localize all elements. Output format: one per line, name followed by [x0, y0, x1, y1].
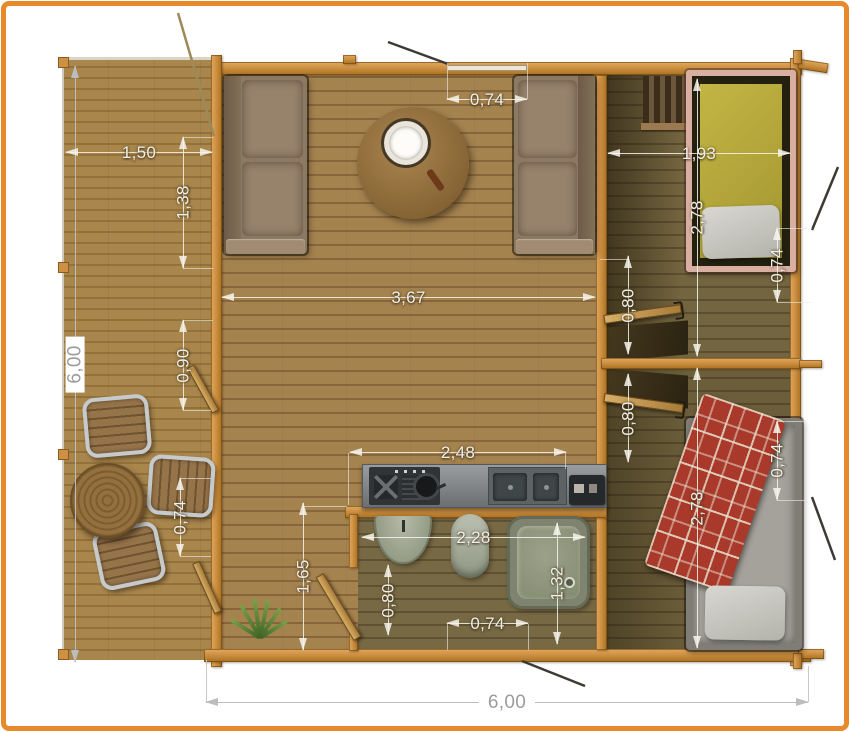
dim-porch-width: 1,50 [66, 146, 212, 158]
sofa-cushion [242, 80, 303, 158]
extension-line [348, 453, 349, 505]
dim-total-width: 6,00 [206, 696, 808, 708]
wall-stub [793, 50, 802, 64]
front-window [447, 65, 527, 71]
stove [369, 467, 440, 505]
sofa-left [224, 76, 307, 254]
floor-plan: 6,00 6,00 1,50 1,38 0,90 0,74 0,74 3,67 … [0, 0, 850, 732]
extension-line [777, 302, 812, 303]
wall-left [211, 55, 222, 667]
sink-basin [493, 473, 527, 501]
sofa-armrest [226, 239, 305, 254]
dim-shower-width: 1,32 [551, 523, 563, 644]
stove-burner [374, 475, 398, 499]
extension-line [777, 500, 807, 501]
porch-post [58, 449, 69, 460]
extension-line [303, 506, 347, 507]
dim-porch-opening-upper: 1,38 [177, 137, 189, 268]
wall-stub [793, 653, 802, 669]
porch-post [58, 649, 69, 660]
dim-hall-door-lower: 0,80 [622, 374, 634, 462]
dim-porch-window: 0,74 [174, 478, 186, 556]
wall-back [204, 649, 811, 662]
plant [232, 594, 288, 650]
porch-post [58, 262, 69, 273]
wall-stub [799, 360, 822, 368]
dim-bedroom2-window: 0,74 [771, 421, 783, 500]
sofa-backrest [224, 76, 241, 254]
sofa-backrest [578, 76, 595, 254]
kitchen-sink [488, 467, 567, 505]
dim-front-window: 0,74 [447, 93, 527, 105]
wall-stub [797, 59, 828, 74]
coffee-maker [569, 475, 605, 505]
door-swing-line [812, 497, 835, 560]
wall-stub [343, 55, 356, 64]
dim-porch-opening-middle: 0,90 [177, 320, 189, 410]
door-swing-line [812, 167, 838, 230]
porch-chair [82, 393, 153, 459]
extension-line [183, 410, 211, 411]
dim-bedroom1-depth: 2,78 [691, 79, 703, 356]
extension-line [180, 556, 211, 557]
extension-line [183, 268, 213, 269]
dim-bathroom-depth: 1,65 [297, 503, 309, 650]
door-swing-line [388, 42, 448, 64]
dim-bathroom-door: 0,80 [382, 565, 394, 635]
sofa-cushion [518, 162, 577, 236]
dim-hall-door-upper: 0,80 [622, 256, 634, 354]
dim-living-width: 3,67 [222, 291, 595, 303]
porch-rail [62, 57, 211, 60]
extension-line [527, 63, 528, 99]
dim-bathroom-window: 0,74 [447, 617, 528, 629]
dim-counter-width: 2,48 [350, 446, 566, 458]
sofa-armrest [516, 239, 593, 254]
appliance-detail [589, 484, 597, 493]
frying-pan [413, 473, 440, 500]
dim-bedroom2-depth: 2,78 [691, 368, 703, 648]
dim-bedroom1-window: 0,74 [771, 228, 783, 302]
table-bowl [384, 121, 428, 165]
bed-pillow [705, 585, 786, 640]
porch-post [58, 57, 69, 68]
porch-table [70, 463, 145, 538]
sofa-cushion [242, 162, 303, 236]
appliance-detail [574, 484, 584, 493]
wall-bathroom-left [349, 514, 358, 568]
extension-line [528, 624, 529, 650]
door-swing-line [522, 661, 585, 686]
extension-line [808, 666, 809, 702]
sink-basin [533, 473, 559, 501]
